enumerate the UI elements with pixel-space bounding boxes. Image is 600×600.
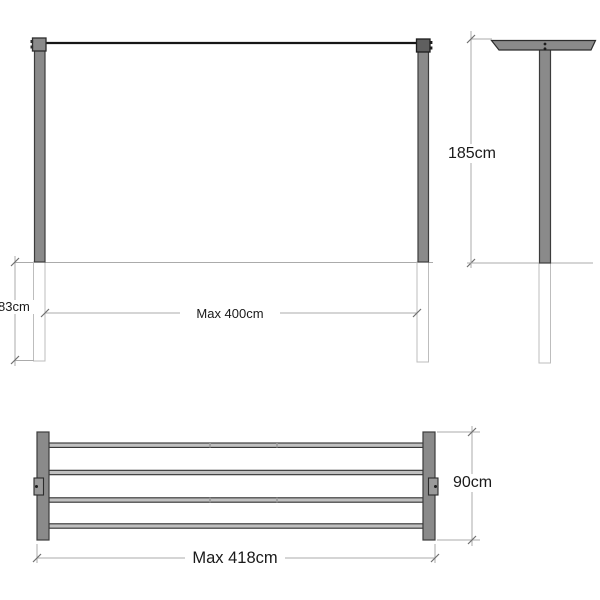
side-post <box>540 49 551 263</box>
side-bracket-bolt-bottom <box>544 47 547 50</box>
right-post-cap <box>417 39 431 52</box>
right-cap-bolt-top <box>430 41 433 44</box>
overall-width-dimension-label: Max 418cm <box>185 549 285 567</box>
left-cap-bolt-top <box>31 40 34 43</box>
plan-rail-3 <box>49 498 423 502</box>
drawing-linework <box>0 0 600 600</box>
plan-rail-4 <box>49 524 423 528</box>
plan-rail-1 <box>49 443 423 447</box>
technical-drawing-canvas: 185cm 83cm Max 400cm Max 418cm 90cm <box>0 0 600 600</box>
left-cap-bolt-bottom <box>31 46 34 49</box>
left-post <box>35 48 46 262</box>
height-dimension-label: 185cm <box>440 145 504 163</box>
side-top-bracket <box>492 41 596 51</box>
right-cap-bolt-bottom <box>430 47 433 50</box>
plan-right-clamp-bolt <box>434 485 437 488</box>
underground-depth-dimension-label: 83cm <box>0 300 34 314</box>
span-dimension-label: Max 400cm <box>180 307 280 321</box>
plan-rail-2 <box>49 470 423 474</box>
plan-left-clamp-bolt <box>35 485 38 488</box>
left-post-cap <box>33 38 47 51</box>
left-post-underground <box>34 262 46 361</box>
right-post <box>418 49 429 262</box>
side-bracket-bolt-top <box>544 43 547 46</box>
side-post-underground <box>539 263 551 363</box>
frame-depth-dimension-label: 90cm <box>445 474 500 492</box>
